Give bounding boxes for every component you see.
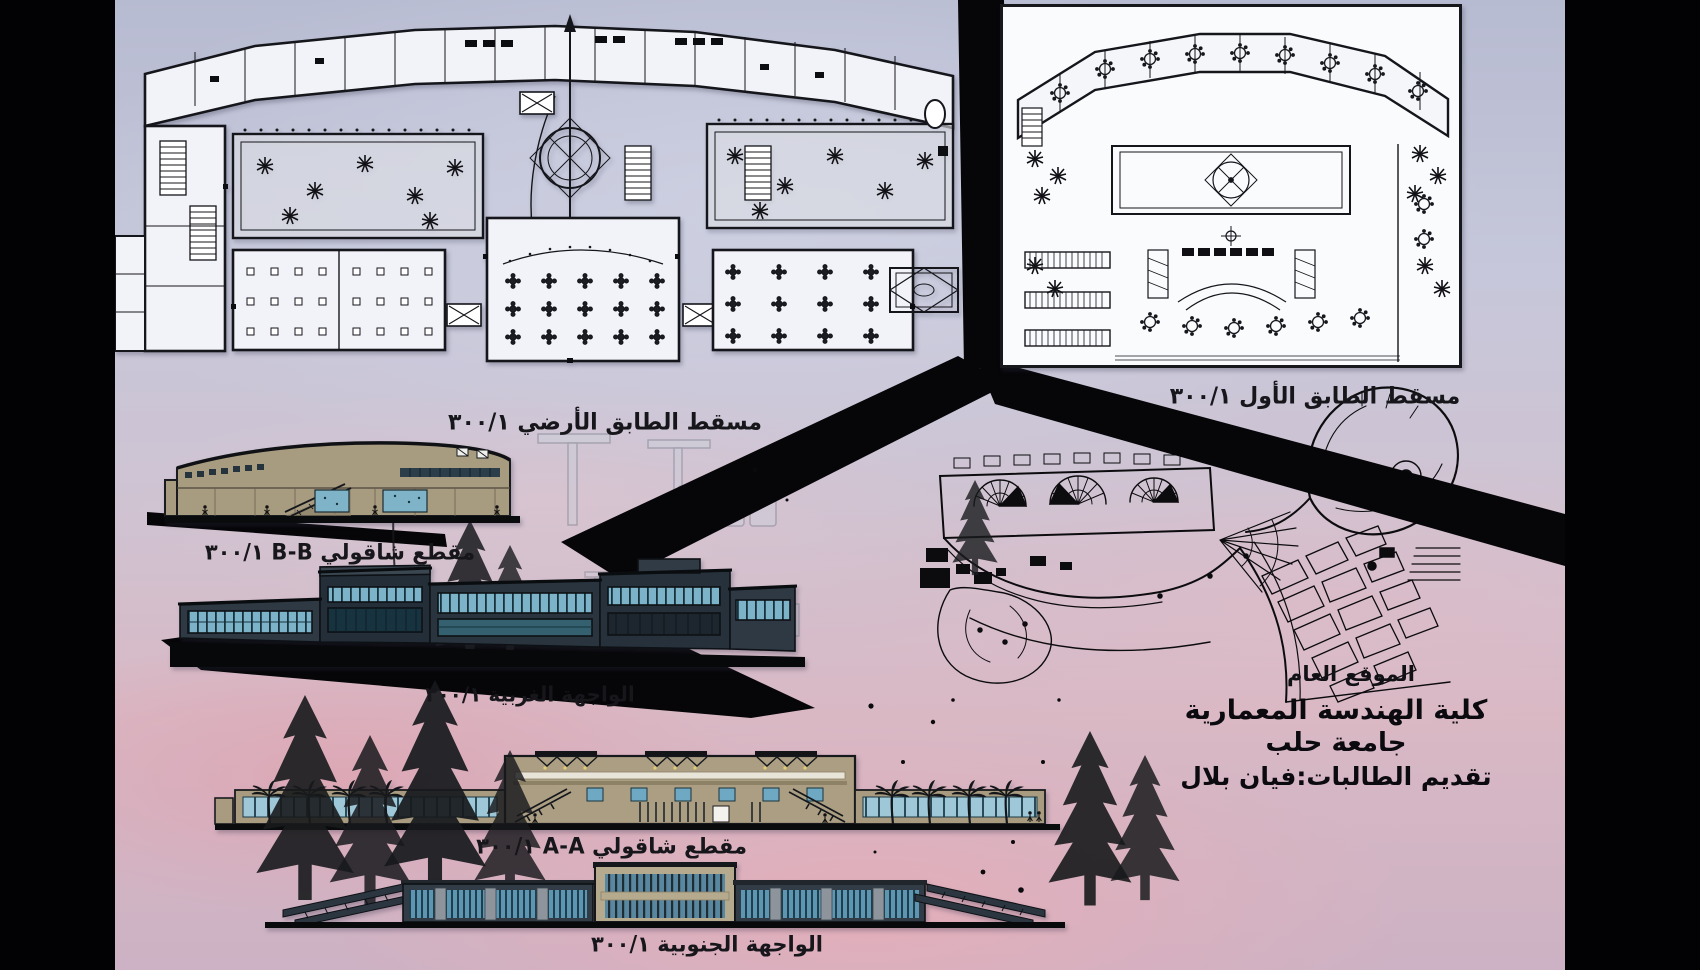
right-ramp bbox=[915, 884, 1045, 927]
ground-floor-plan-caption: مسقط الطابق الأرضي ٣٠٠/١ bbox=[445, 410, 765, 436]
section-aa-caption: مقطع شاقولي A-A ٣٠٠/١ bbox=[507, 834, 747, 859]
section-bb-caption: مقطع شاقولي B-B ٣٠٠/١ bbox=[195, 540, 485, 565]
architecture-presentation-board: مسقط الطابق الأرضي ٣٠٠/١ مسقط الطابق الأ… bbox=[115, 0, 1565, 970]
first-floor-plan-caption: مسقط الطابق الأول ٣٠٠/١ bbox=[1145, 384, 1485, 410]
project-title-block: كلية الهندسة المعمارية جامعة حلب تقديم ا… bbox=[1165, 694, 1507, 793]
presentation-board-stage: مسقط الطابق الأرضي ٣٠٠/١ مسقط الطابق الأ… bbox=[0, 0, 1700, 970]
south-elevation-drawing bbox=[265, 860, 1065, 930]
left-black-bar bbox=[0, 0, 115, 970]
university-title: جامعة حلب bbox=[1165, 727, 1507, 760]
west-elevation-caption: الواجهة الغربية ٣٠٠/١ bbox=[410, 682, 650, 707]
presented-by-line: تقديم الطالبات:فيان بلال bbox=[1165, 760, 1507, 793]
foreground-trees bbox=[115, 0, 1565, 970]
south-elevation-caption: الواجهة الجنوبية ٣٠٠/١ bbox=[577, 932, 837, 957]
ground-line bbox=[265, 922, 1065, 928]
right-black-bar bbox=[1565, 0, 1700, 970]
left-ramp bbox=[283, 884, 415, 927]
faculty-title: كلية الهندسة المعمارية bbox=[1165, 694, 1507, 727]
site-plan-caption: الموقع العام bbox=[1287, 662, 1447, 686]
